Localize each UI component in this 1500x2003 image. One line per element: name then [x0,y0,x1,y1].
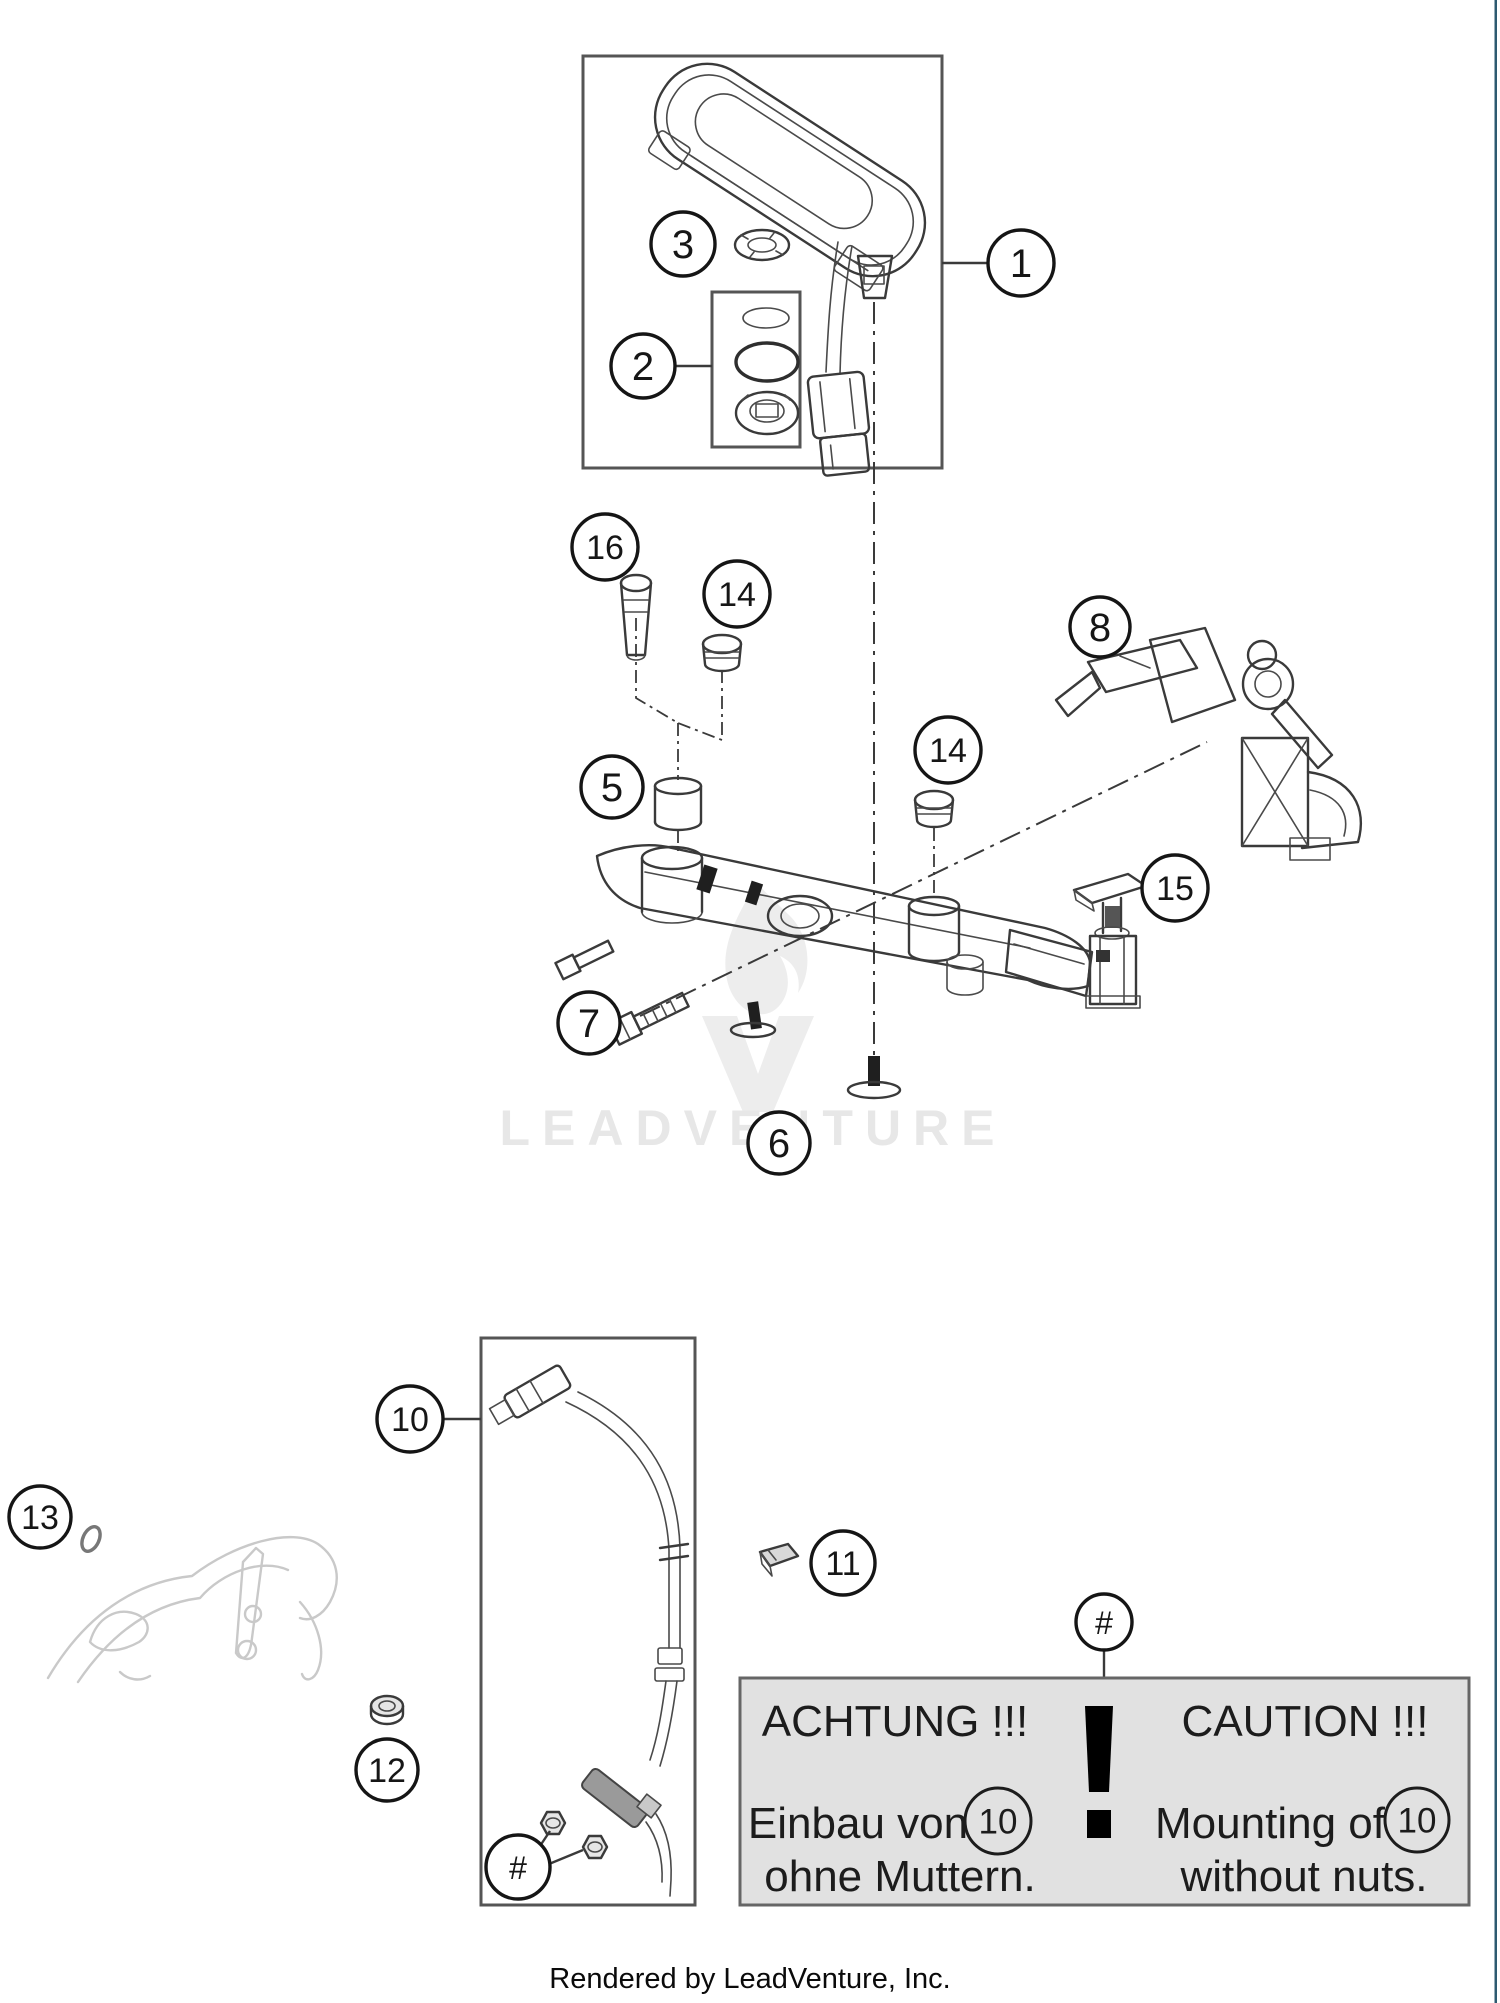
svg-text:#: # [509,1850,527,1886]
part-drawing-grommet-5 [655,778,701,830]
hex-nuts [541,1812,607,1858]
svg-text:1: 1 [1010,242,1032,286]
parts-diagram-canvas: LEADVENTURE [0,0,1500,2003]
part-drawing-bracket-8 [1056,628,1361,860]
page-right-border [1495,0,1498,2003]
callout-11[interactable]: 11 [811,1531,875,1595]
callout-16[interactable]: 16 [572,514,638,580]
svg-text:15: 15 [1156,870,1194,908]
callout-13[interactable]: 13 [9,1486,71,1548]
svg-text:11: 11 [825,1545,860,1583]
part-drawing-washer-3 [735,230,789,260]
caution-ref-de: 10 [979,1803,1018,1842]
centerlines [636,302,1207,1055]
callouts: 12356781011121314141516## [9,212,1208,1899]
svg-text:3: 3 [672,223,694,267]
caution-line1-en: Mounting of [1155,1799,1386,1848]
caution-box: ACHTUNG !!! CAUTION !!! Einbau von 10 oh… [740,1678,1469,1905]
svg-text:#: # [1095,1605,1113,1641]
part-drawing-clamp-bracket [597,845,1092,996]
callout-7[interactable]: 7 [558,992,620,1054]
caution-ref-en: 10 [1398,1802,1437,1841]
part-drawing-cap-14b [915,791,953,827]
callout-5[interactable]: 5 [581,756,643,818]
svg-text:12: 12 [368,1752,406,1790]
callout-8[interactable]: 8 [1070,597,1130,657]
svg-text:6: 6 [768,1122,790,1166]
svg-text:14: 14 [718,576,756,614]
part-drawing-oring-13 [78,1524,103,1554]
part-drawing-nut-12 [371,1696,403,1724]
caution-title-de: ACHTUNG !!! [762,1697,1028,1746]
part-drawing-seal-kit [736,308,798,434]
svg-text:8: 8 [1089,606,1111,650]
callout-2[interactable]: 2 [611,334,675,398]
caution-line1-de: Einbau von [748,1799,968,1848]
watermark-v-icon [702,1016,814,1112]
callout-hash[interactable]: # [486,1835,550,1899]
callout-hash[interactable]: # [1076,1594,1132,1650]
svg-text:10: 10 [391,1401,429,1439]
assembly-box-seal-kit [712,292,800,447]
svg-text:7: 7 [578,1002,600,1046]
part-drawing-cap-14a [703,635,741,671]
svg-text:13: 13 [21,1499,59,1537]
callout-14[interactable]: 14 [704,561,770,627]
callout-1[interactable]: 1 [988,230,1054,296]
svg-text:2: 2 [632,345,654,389]
svg-text:16: 16 [586,529,624,567]
caution-line2-de: ohne Muttern. [764,1852,1036,1901]
callout-12[interactable]: 12 [356,1739,418,1801]
speedometer-connector [807,371,873,476]
callout-15[interactable]: 15 [1142,855,1208,921]
callout-14[interactable]: 14 [915,717,981,783]
part-box-10 [481,1338,695,1905]
exclamation-icon [1085,1706,1113,1838]
caution-title-en: CAUTION !!! [1182,1697,1429,1746]
headlight-mask-sketch [48,1537,337,1682]
footer-text: Rendered by LeadVenture, Inc. [549,1963,950,1995]
caution-line2-en: without nuts. [1179,1852,1427,1901]
svg-text:5: 5 [601,766,623,810]
callout-6[interactable]: 6 [748,1112,810,1174]
svg-text:14: 14 [929,732,967,770]
callout-3[interactable]: 3 [651,212,715,276]
callout-10[interactable]: 10 [377,1386,443,1452]
part-drawing-clip-11 [760,1544,798,1576]
cable-connector [488,1364,572,1428]
